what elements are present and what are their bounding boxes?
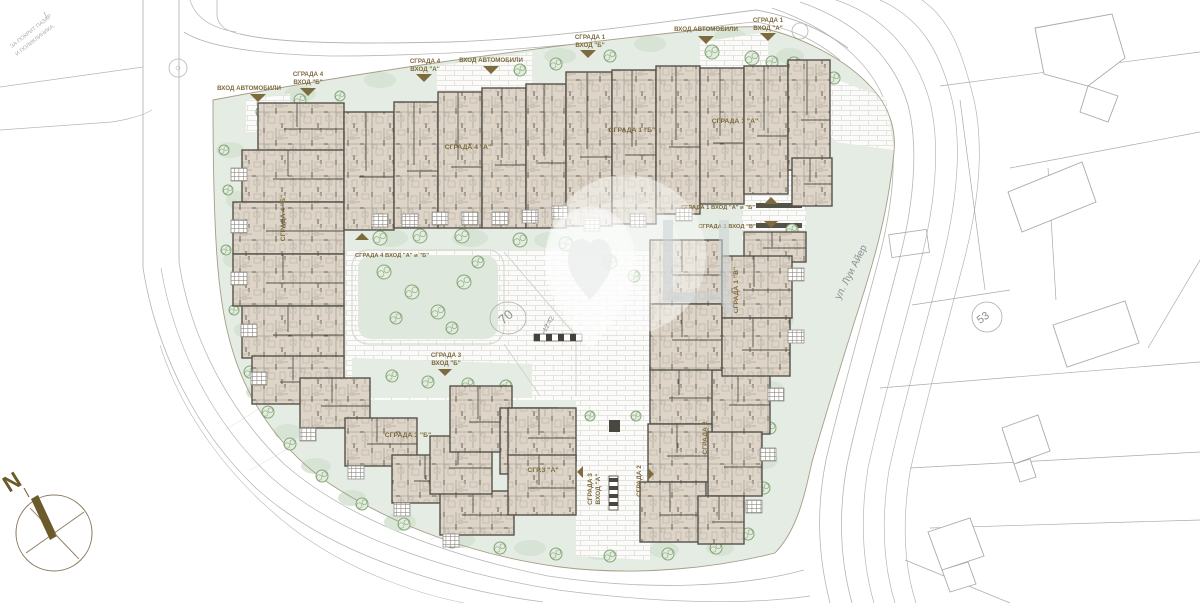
- svg-text:ВХОД "Б": ВХОД "Б": [431, 360, 460, 367]
- svg-text:СГРАДА 1 "А": СГРАДА 1 "А": [712, 118, 759, 125]
- svg-text:СГРАДА 4: СГРАДА 4: [410, 58, 441, 65]
- svg-text:ВХОД АВТОМОБИЛИ: ВХОД АВТОМОБИЛИ: [459, 57, 523, 64]
- svg-text:СГРАДА 1 "Б": СГРАДА 1 "Б": [609, 127, 656, 134]
- svg-text:ВХОД "А": ВХОД "А": [410, 66, 439, 73]
- svg-text:ВХОД АВТОМОБИЛИ: ВХОД АВТОМОБИЛИ: [217, 85, 281, 92]
- svg-text:СГРАДА 3 "Б": СГРАДА 3 "Б": [385, 432, 432, 439]
- svg-text:СГРАДА 1: СГРАДА 1: [575, 34, 606, 41]
- svg-text:ВХОД "А": ВХОД "А": [595, 474, 602, 505]
- svg-text:СГРАДА 4 ВХОД "А" и "Б": СГРАДА 4 ВХОД "А" и "Б": [355, 253, 429, 259]
- svg-text:СГРАДА 3: СГРАДА 3: [587, 473, 594, 505]
- svg-text:СГРАДА 4 "А": СГРАДА 4 "А": [445, 144, 492, 151]
- svg-text:СГРАДА 2: СГРАДА 2: [636, 465, 643, 497]
- svg-text:СГРАДА 4: СГРАДА 4: [293, 71, 324, 78]
- svg-text:СГРАДА 3: СГРАДА 3: [431, 352, 462, 359]
- svg-text:ВХОД "Б": ВХОД "Б": [293, 79, 322, 86]
- svg-text:СГРАДА 1: СГРАДА 1: [753, 17, 784, 24]
- svg-text:ВХОД "Б": ВХОД "Б": [575, 42, 604, 49]
- svg-text:СГРАДА 4 "Б": СГРАДА 4 "Б": [280, 195, 287, 242]
- svg-text:ВХОД "А": ВХОД "А": [753, 25, 782, 32]
- svg-text:ВХОД АВТОМОБИЛИ: ВХОД АВТОМОБИЛИ: [674, 26, 738, 33]
- svg-text:СГРАДА 1 "В": СГРАДА 1 "В": [733, 267, 740, 314]
- svg-text:СГР.3 "А": СГР.3 "А": [527, 467, 558, 474]
- svg-text:СГРАДА 2: СГРАДА 2: [702, 421, 709, 454]
